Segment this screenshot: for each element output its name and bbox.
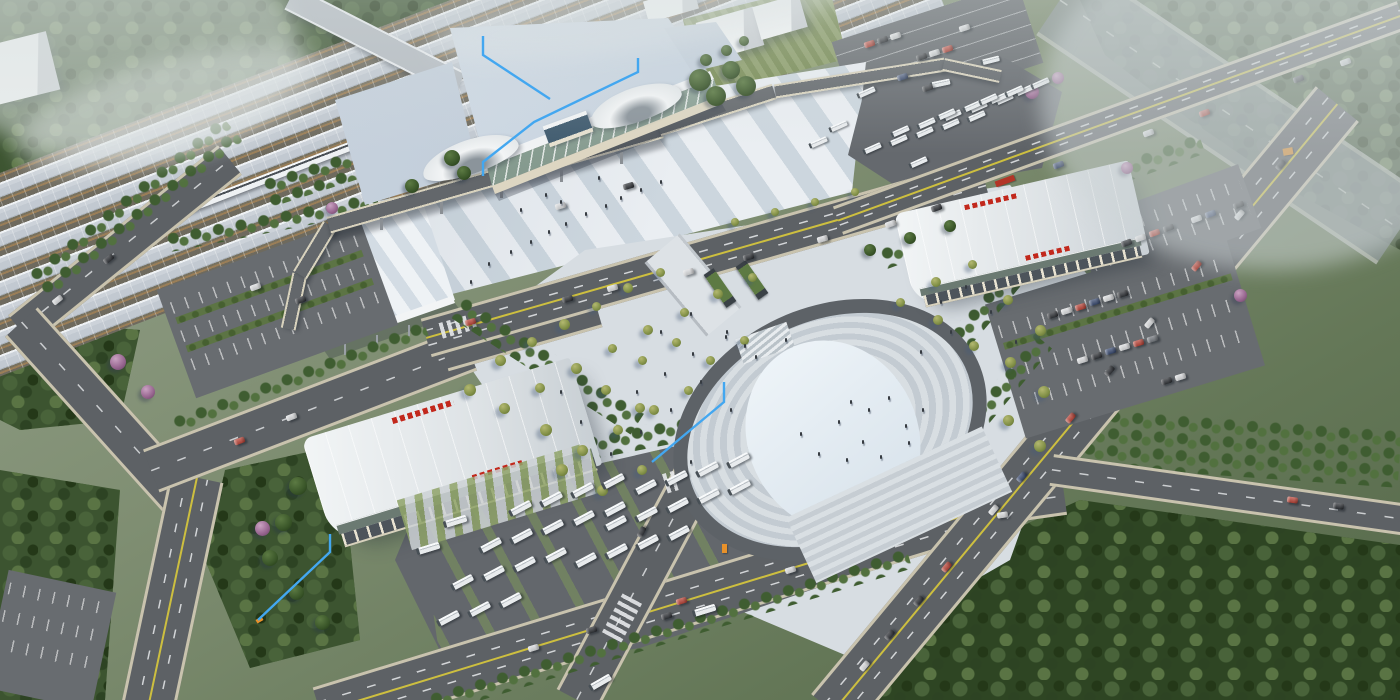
callout-terminal-west: [258, 534, 330, 620]
annotation-lines: [0, 0, 1400, 700]
aerial-render-scene: [0, 0, 1400, 700]
callout-plaza: [652, 382, 724, 462]
callout-station-facade: [483, 58, 638, 176]
callout-station-roof: [483, 36, 550, 99]
